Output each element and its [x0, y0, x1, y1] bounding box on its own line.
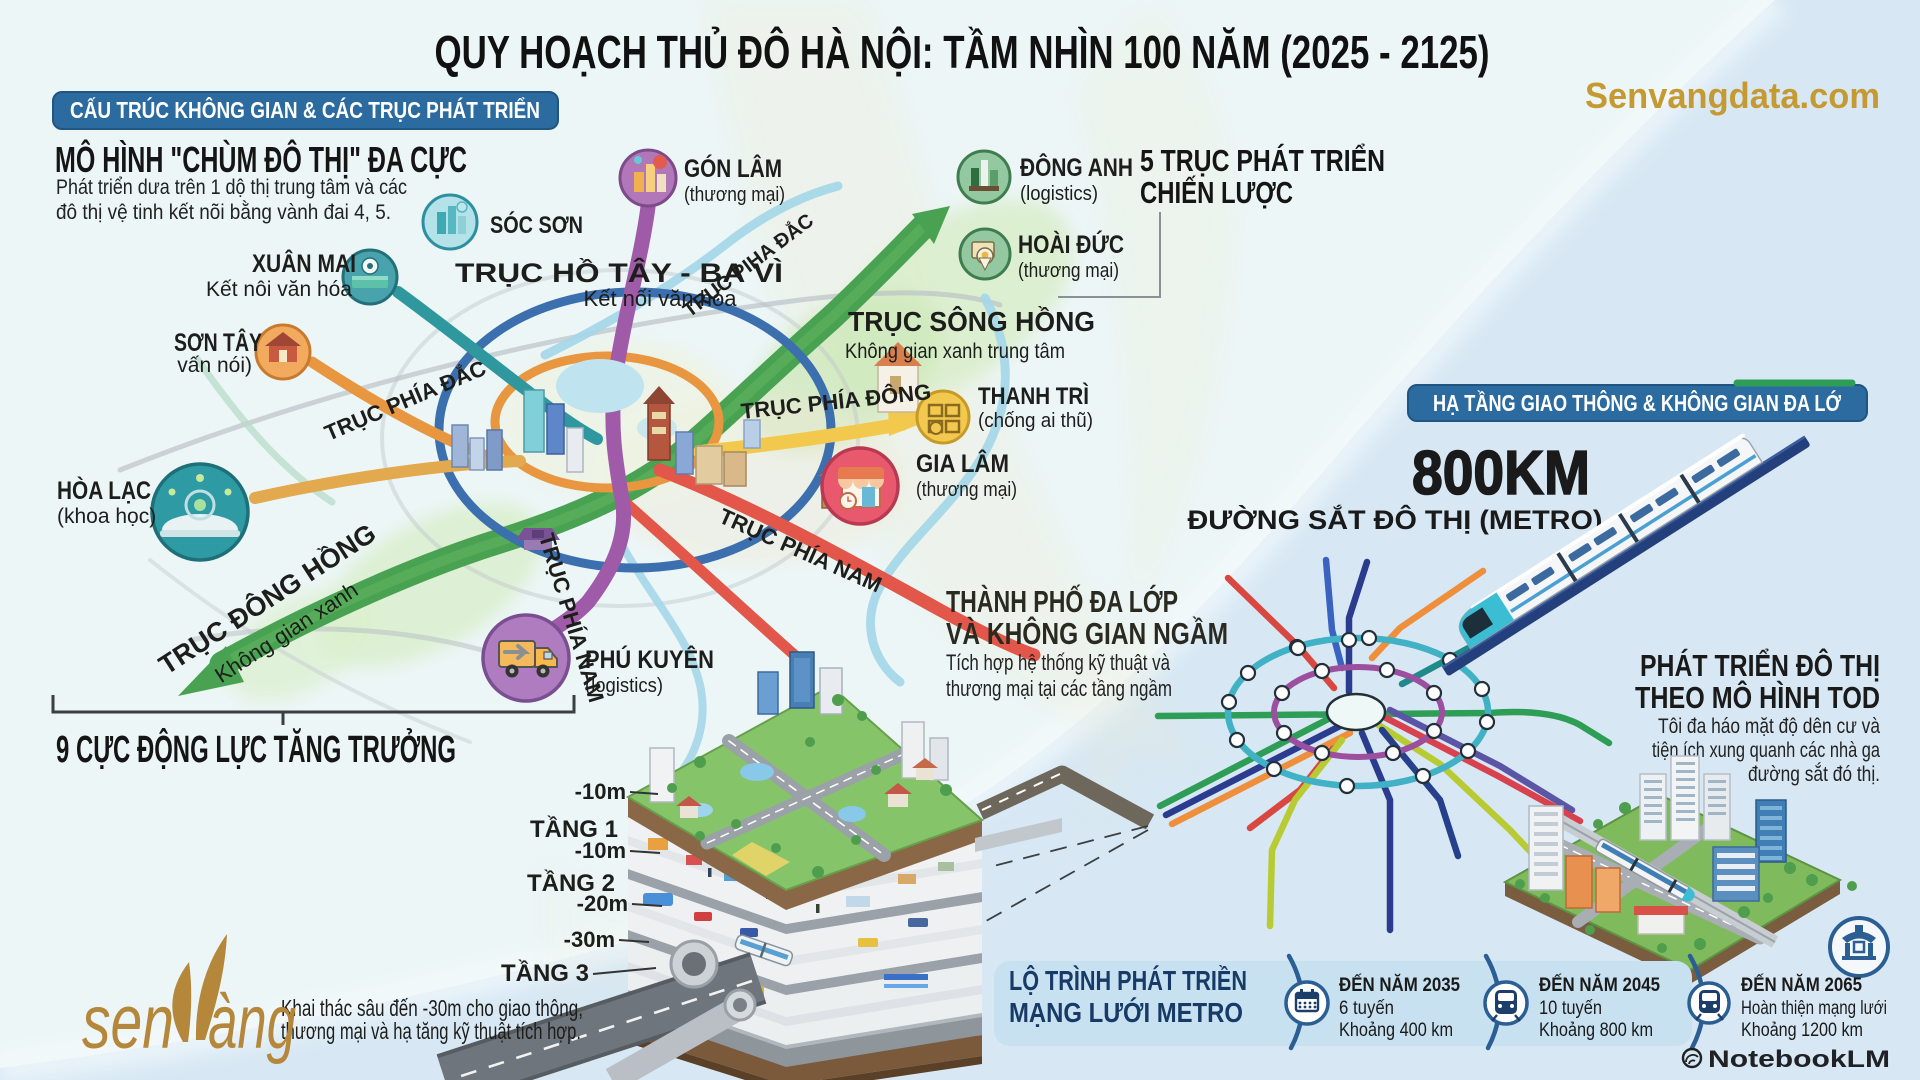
svg-text:GIA LÂM: GIA LÂM	[916, 448, 1009, 478]
svg-text:Tôi đa háo mặt độ dên cư và: Tôi đa háo mặt độ dên cư và	[1658, 715, 1880, 738]
svg-text:9 CỰC ĐỘNG LỰC TĂNG TRƯỞNG: 9 CỰC ĐỘNG LỰC TĂNG TRƯỞNG	[56, 726, 456, 771]
svg-text:ĐẾN NĂM 2035: ĐẾN NĂM 2035	[1339, 974, 1460, 996]
svg-text:THEO MÔ HÌNH TOD: THEO MÔ HÌNH TOD	[1635, 679, 1880, 715]
svg-text:(khoa học): (khoa học)	[57, 505, 156, 528]
svg-text:GÓN LÂM: GÓN LÂM	[684, 153, 782, 183]
svg-text:LỘ TRÌNH PHÁT TRIỀN: LỘ TRÌNH PHÁT TRIỀN	[1009, 964, 1247, 996]
svg-text:-20m: -20m	[577, 891, 628, 916]
svg-text:thương mại và hạ tăng kỹ thuật: thương mại và hạ tăng kỹ thuật tích hợp.	[281, 1018, 581, 1044]
svg-text:HÒA LẠC: HÒA LẠC	[57, 475, 151, 505]
svg-text:Tích hợp hệ thống kỹ thuật và: Tích hợp hệ thống kỹ thuật và	[946, 650, 1171, 675]
svg-text:Khoảng 400 km: Khoảng 400 km	[1339, 1020, 1453, 1041]
svg-text:sen: sen	[82, 980, 174, 1065]
svg-text:àng: àng	[208, 980, 296, 1065]
svg-text:TẦNG 3: TẦNG 3	[501, 959, 589, 987]
svg-text:-10m: -10m	[575, 838, 626, 863]
svg-text:QUY HOẠCH THỦ ĐÔ HÀ NỘI: TẦM N: QUY HOẠCH THỦ ĐÔ HÀ NỘI: TẦM NHÌN 100 NĂ…	[435, 26, 1490, 78]
svg-text:5 TRỤC PHÁT TRIỂN: 5 TRỤC PHÁT TRIỂN	[1140, 143, 1385, 178]
svg-text:CẤU TRÚC KHÔNG GIAN & CÁC TRỤC: CẤU TRÚC KHÔNG GIAN & CÁC TRỤC PHÁT TRIỂ…	[70, 96, 540, 123]
svg-text:ĐẾN NĂM 2065: ĐẾN NĂM 2065	[1741, 974, 1862, 996]
svg-text:TRỤC SÔNG HỒNG: TRỤC SÔNG HỒNG	[848, 305, 1095, 337]
svg-text:thương mại tại các tầng ngầm: thương mại tại các tầng ngầm	[946, 676, 1172, 701]
svg-text:Không gian xanh trung tâm: Không gian xanh trung tâm	[845, 340, 1065, 363]
svg-text:(thương mại): (thương mại)	[684, 184, 785, 206]
svg-text:PHÁT TRIỂN ĐÔ THỊ: PHÁT TRIỂN ĐÔ THỊ	[1640, 647, 1880, 683]
svg-text:MẠNG LƯỚI METRO: MẠNG LƯỚI METRO	[1009, 997, 1243, 1028]
svg-text:THANH TRÌ: THANH TRÌ	[978, 382, 1089, 410]
svg-text:SƠN TÂY: SƠN TÂY	[174, 327, 262, 357]
svg-text:XUÂN MAI: XUÂN MAI	[252, 248, 356, 278]
svg-text:-10m: -10m	[575, 779, 626, 804]
svg-text:-30m: -30m	[564, 927, 615, 952]
svg-text:(thương mại): (thương mại)	[1018, 260, 1119, 282]
svg-text:Kết nôi văn hóa: Kết nôi văn hóa	[206, 278, 352, 301]
svg-text:Khoảng 800 km: Khoảng 800 km	[1539, 1020, 1653, 1041]
svg-text:NotebookLM: NotebookLM	[1708, 1046, 1890, 1073]
svg-text:10 tuyến: 10 tuyến	[1539, 998, 1602, 1019]
svg-text:6 tuyến: 6 tuyến	[1339, 998, 1394, 1019]
svg-text:THÀNH PHỐ ĐA LỚP: THÀNH PHỐ ĐA LỚP	[946, 583, 1178, 619]
svg-text:SÓC SƠN: SÓC SƠN	[490, 211, 583, 239]
svg-text:CHIẾN LƯỢC: CHIẾN LƯỢC	[1140, 175, 1293, 210]
svg-text:Khoảng 1200 km: Khoảng 1200 km	[1741, 1020, 1863, 1041]
svg-text:đường sắt đó thị.: đường sắt đó thị.	[1748, 763, 1880, 786]
svg-text:(logistics): (logistics)	[1020, 183, 1098, 205]
svg-text:(thương mại): (thương mại)	[916, 479, 1017, 501]
svg-text:VÀ KHÔNG GIAN NGẦM: VÀ KHÔNG GIAN NGẦM	[946, 615, 1228, 651]
svg-text:Hoàn thiện mạng lưới: Hoàn thiện mạng lưới	[1741, 998, 1887, 1019]
svg-text:(chống ai thũ): (chống ai thũ)	[978, 410, 1093, 432]
svg-text:ĐƯỜNG SẮT ĐÔ THỊ (METRO): ĐƯỜNG SẮT ĐÔ THỊ (METRO)	[1188, 504, 1603, 535]
svg-text:MÔ HÌNH "CHÙM ĐÔ THỊ" ĐA CỰC: MÔ HÌNH "CHÙM ĐÔ THỊ" ĐA CỰC	[55, 138, 467, 180]
svg-text:vấn nói): vấn nói)	[177, 354, 252, 377]
svg-text:Senvangdata.com: Senvangdata.com	[1585, 75, 1880, 116]
svg-text:ĐÔNG ANH: ĐÔNG ANH	[1020, 152, 1133, 182]
svg-text:HẠ TẦNG GIAO THÔNG & KHÔNG GIA: HẠ TẦNG GIAO THÔNG & KHÔNG GIAN ĐA LỚ	[1433, 389, 1841, 416]
svg-text:800KM: 800KM	[1412, 439, 1590, 508]
svg-text:đô thị vệ tinh kết nõi bằng và: đô thị vệ tinh kết nõi bằng vành đai 4, …	[56, 201, 391, 224]
svg-text:HOÀI ĐỨC: HOÀI ĐỨC	[1018, 229, 1124, 259]
svg-text:PHÚ KUYÊN: PHÚ KUYÊN	[585, 644, 714, 674]
svg-text:Phát triển dưa trên 1 dộ thị t: Phát triển dưa trên 1 dộ thị trung tâm v…	[56, 176, 407, 199]
svg-text:ĐẾN NĂM 2045: ĐẾN NĂM 2045	[1539, 974, 1660, 996]
